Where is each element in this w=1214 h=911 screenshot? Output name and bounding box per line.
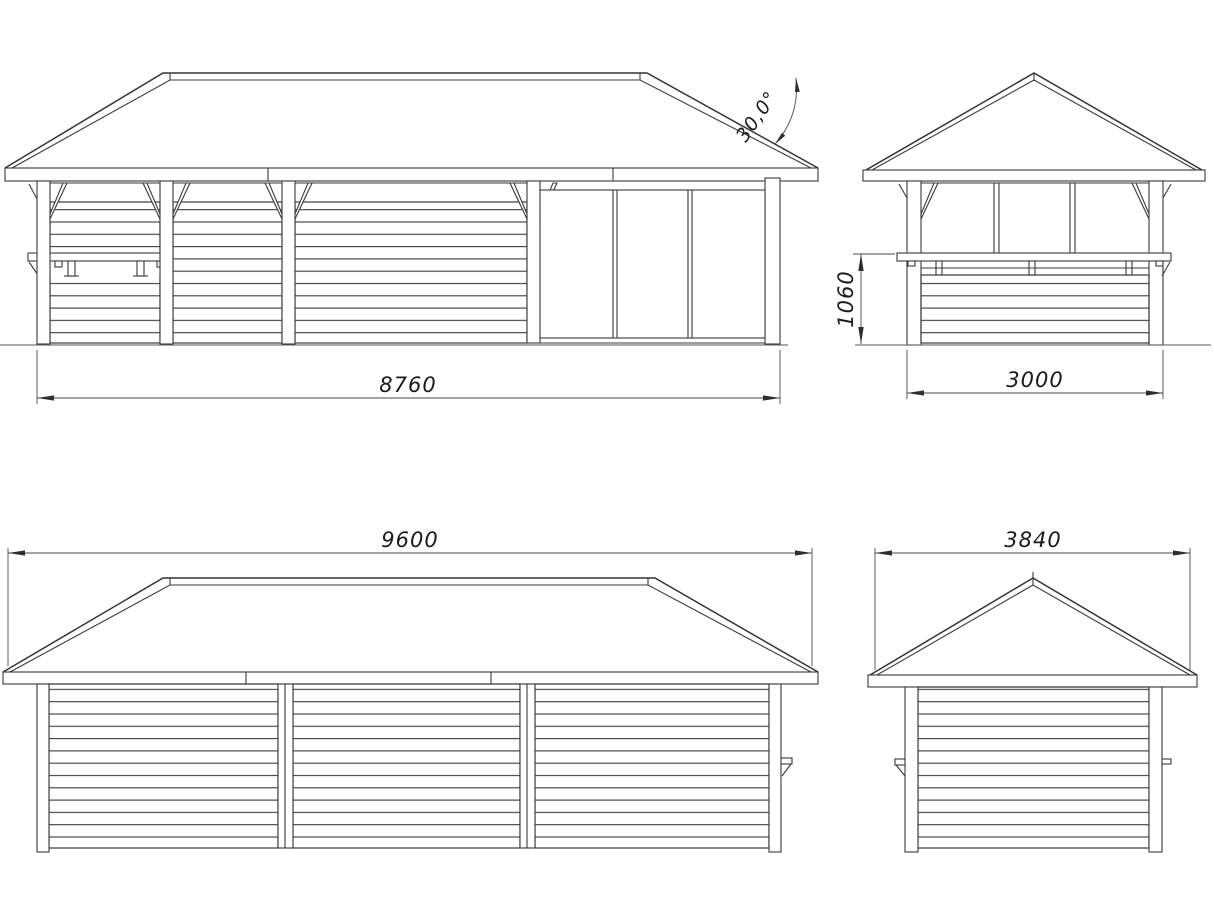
arrowhead	[875, 550, 892, 555]
post	[527, 181, 540, 343]
counter-board-end	[781, 758, 792, 764]
side-a-half-wall	[921, 268, 1149, 343]
mid-stud	[994, 183, 999, 253]
counter-board-end	[1162, 759, 1171, 764]
dimension-label: 9600	[381, 528, 438, 552]
arrowhead	[37, 395, 54, 400]
post	[282, 181, 295, 344]
angle-arc	[775, 78, 797, 144]
corner-post	[769, 684, 781, 852]
siding-panel	[293, 684, 520, 848]
counter-block	[1156, 261, 1163, 266]
counter-board	[897, 253, 1171, 261]
rear-roof-outline	[3, 578, 818, 672]
siding-panel	[535, 684, 769, 848]
arrowhead	[8, 550, 25, 555]
siding-panel	[173, 202, 282, 343]
post	[37, 181, 50, 344]
arrowhead	[763, 395, 780, 400]
siding-panel	[921, 275, 1149, 343]
siding-panel	[918, 687, 1149, 848]
front-roof-outline	[5, 73, 818, 168]
side-b-roof	[868, 572, 1197, 687]
corner-post	[37, 684, 49, 852]
corner-post	[905, 687, 918, 852]
dimension-label: 8760	[379, 373, 436, 397]
side-a-roof-outline	[866, 73, 1202, 170]
counter-block	[55, 261, 62, 267]
front-fascia	[5, 168, 818, 181]
roof-angle-annotation: 30,0°	[732, 78, 800, 146]
counter-bracket	[68, 261, 75, 276]
arrowhead	[775, 133, 785, 144]
counter-support-diagonal	[782, 764, 791, 776]
dimension-rear-width: 9600	[8, 528, 812, 666]
counter-support-diagonal	[896, 765, 905, 776]
corner-post	[1149, 687, 1162, 852]
rear-elevation: 9600	[3, 528, 818, 852]
arrowhead	[795, 78, 800, 92]
front-roof	[5, 73, 818, 181]
arrowhead	[1146, 390, 1163, 395]
dimension-label: 1060	[834, 270, 858, 327]
arrowhead	[858, 254, 863, 271]
side-elevation-a: 1060 3000	[834, 73, 1211, 399]
dimension-counter-height: 1060	[834, 254, 895, 344]
siding-panel	[49, 684, 278, 848]
side-a-bar-counter	[897, 253, 1171, 276]
counter-bracket	[137, 261, 144, 276]
front-glazed-section	[540, 190, 765, 343]
side-b-fascia	[868, 675, 1197, 687]
drawing-sheet: 8760 30,0°	[0, 0, 1214, 911]
siding-panel	[295, 202, 527, 343]
counter-block	[908, 261, 915, 266]
dimension-side-a-width: 3000	[907, 350, 1163, 399]
arrowhead	[858, 327, 863, 344]
side-b-roof-outline	[870, 578, 1197, 675]
rear-counter-end	[781, 758, 792, 776]
corner-post	[765, 178, 780, 344]
arrowhead	[795, 550, 812, 555]
side-a-roof-inner-line	[872, 80, 1196, 170]
side-a-knee-braces	[899, 183, 1171, 219]
technical-drawing-canvas: 8760 30,0°	[0, 0, 1214, 911]
front-elevation: 8760 30,0°	[0, 73, 818, 404]
dimension-label: 3000	[1006, 368, 1063, 392]
front-roof-inner-line	[12, 80, 811, 168]
glass-wall	[540, 190, 765, 338]
arrowhead	[907, 390, 924, 395]
dimension-front-width: 8760	[37, 350, 780, 404]
side-a-fascia	[863, 170, 1205, 181]
rear-siding-panels	[49, 684, 769, 848]
rear-roof	[3, 578, 818, 684]
dimension-label: 3840	[1004, 528, 1061, 552]
post	[160, 181, 173, 344]
side-elevation-b: 3840	[868, 528, 1197, 852]
roof-angle-label: 30,0°	[732, 87, 783, 146]
side-a-roof	[863, 73, 1205, 181]
counter-board-end	[895, 759, 905, 765]
arrowhead	[1173, 550, 1190, 555]
rear-fascia	[3, 672, 818, 684]
side-b-roof-inner-line	[877, 585, 1190, 675]
mid-stud	[1070, 183, 1075, 253]
